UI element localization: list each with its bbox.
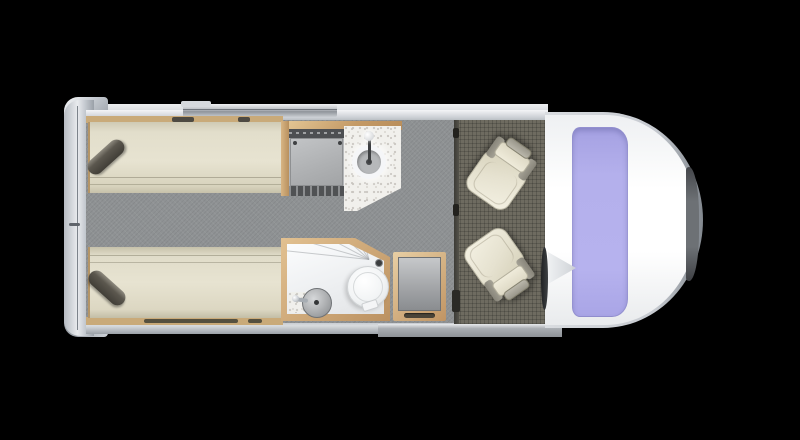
toilet-seat-ring [353,272,383,302]
door-hinge-top [453,128,459,138]
wardrobe-interior [398,257,441,311]
hob-hinge-left [293,141,297,145]
shower-drain-cap [375,259,383,267]
awning-bar-endcap [181,101,211,107]
wardrobe-handle-slot [404,313,435,318]
steering-wheel [541,247,548,310]
foot-rail-groove [144,319,238,323]
kitchen-hob-unit [289,129,344,196]
entry-step [378,324,562,337]
kitchen-side-wall [281,121,289,196]
windshield [572,127,628,317]
wardrobe [393,252,446,321]
basin-drain-dot [314,300,319,305]
door-hinge-mid [453,204,459,216]
mattress-seam [90,177,283,178]
mattress-seam [90,262,283,263]
hob-lid [290,138,343,186]
rear-door-seam [77,106,78,330]
mattress-seam [90,184,283,185]
hob-hinge-right [338,141,342,145]
cab-partition-seam [454,120,459,324]
basin-faucet-tip [292,295,299,302]
sink-faucet-tip [364,131,374,141]
bed-foot-rail [86,317,283,325]
foot-rail-tab [248,319,262,323]
awning-bar-seam [183,109,337,110]
campervan-floorplan [0,0,800,440]
rear-door-handle [69,223,80,226]
door-latch [452,290,460,312]
hob-bottom-vent [289,186,344,196]
twin-bed-bottom [88,247,281,318]
hob-top-vent [289,129,344,138]
mattress-seam [90,255,283,256]
